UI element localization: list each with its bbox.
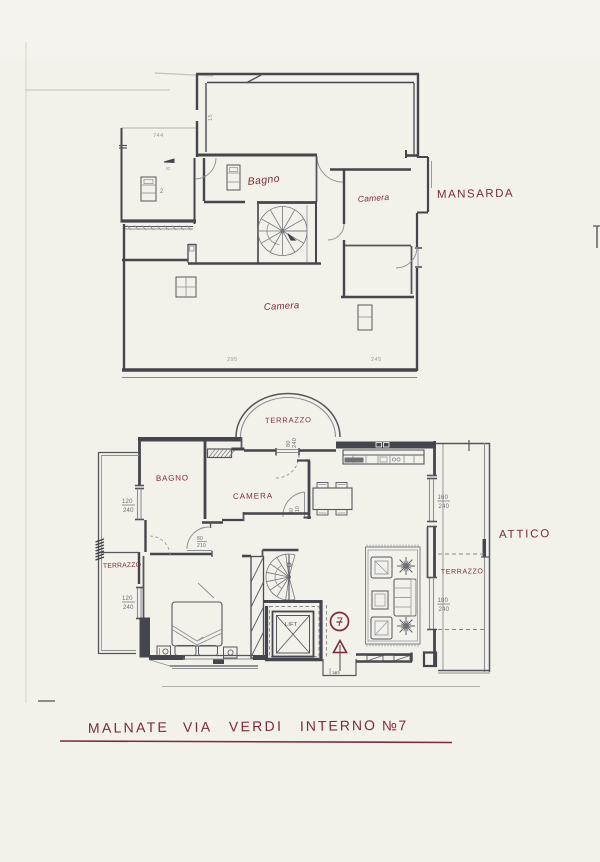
svg-text:TERRAZZO: TERRAZZO (103, 562, 141, 570)
svg-text:VERDI: VERDI (229, 718, 284, 735)
svg-text:295: 295 (227, 357, 238, 363)
svg-text:240: 240 (123, 605, 134, 611)
svg-text:245: 245 (371, 357, 382, 363)
svg-text:240: 240 (439, 607, 450, 613)
svg-text:120: 120 (122, 596, 133, 602)
svg-text:≈: ≈ (334, 671, 337, 677)
svg-text:CAMERA: CAMERA (233, 491, 273, 501)
svg-text:240: 240 (123, 508, 134, 514)
svg-text:15: 15 (208, 114, 214, 121)
svg-text:LIFT: LIFT (285, 622, 298, 628)
svg-text:№7: №7 (382, 717, 408, 733)
svg-text:210: 210 (197, 543, 206, 549)
svg-text:7: 7 (337, 617, 343, 629)
svg-text:240: 240 (292, 438, 298, 448)
svg-text:MANSARDA: MANSARDA (437, 188, 514, 201)
svg-text:INTERNO: INTERNO (300, 717, 377, 734)
svg-text:BAGNO: BAGNO (156, 473, 189, 483)
svg-text:744: 744 (153, 133, 164, 139)
svg-text:ATTICO: ATTICO (499, 528, 551, 541)
svg-text:TERRAZZO: TERRAZZO (441, 568, 484, 576)
svg-text:VIA: VIA (183, 719, 213, 735)
svg-text:Camera: Camera (264, 300, 300, 313)
svg-text:MALNATE: MALNATE (88, 719, 169, 736)
svg-text:8: 8 (166, 166, 172, 170)
svg-text:240: 240 (439, 504, 450, 510)
svg-text:TERRAZZO: TERRAZZO (265, 415, 312, 425)
svg-text:80: 80 (197, 536, 203, 542)
svg-text:120: 120 (122, 499, 133, 505)
